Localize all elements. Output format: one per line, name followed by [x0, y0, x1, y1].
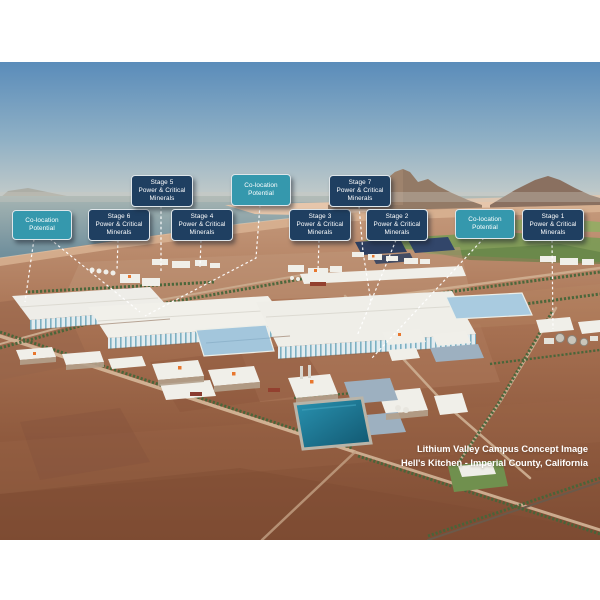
- callout-line: Power & Critical: [296, 221, 343, 229]
- callout-line: Minerals: [107, 229, 132, 237]
- callout-line: Power & Critical: [178, 221, 225, 229]
- callout-colocation-left: Co-locationPotential: [12, 210, 72, 240]
- callout-line: Power & Critical: [373, 221, 420, 229]
- callout-stage-4: Stage 4Power & CriticalMinerals: [171, 209, 233, 241]
- callout-stage-1: Stage 1Power & CriticalMinerals: [522, 209, 584, 241]
- callout-line: Power & Critical: [336, 187, 383, 195]
- callout-line: Potential: [29, 225, 55, 233]
- image-caption: Lithium Valley Campus Concept Image Hell…: [401, 443, 588, 471]
- callout-line: Potential: [472, 224, 498, 232]
- callout-line: Co-location: [244, 182, 277, 190]
- callout-line: Co-location: [468, 216, 501, 224]
- callout-line: Stage 7: [349, 179, 372, 187]
- callout-stage-5: Stage 5Power & CriticalMinerals: [131, 175, 193, 207]
- sky: [0, 62, 600, 202]
- callout-line: Minerals: [385, 229, 410, 237]
- callout-line: Power & Critical: [95, 221, 142, 229]
- callout-line: Stage 1: [542, 213, 565, 221]
- callout-line: Stage 5: [151, 179, 174, 187]
- evaporation-pond: [295, 398, 371, 449]
- callout-colocation-right: Co-locationPotential: [455, 209, 515, 239]
- callout-line: Power & Critical: [529, 221, 576, 229]
- callout-line: Minerals: [190, 229, 215, 237]
- callout-stage-2: Stage 2Power & CriticalMinerals: [366, 209, 428, 241]
- callout-line: Stage 4: [191, 213, 214, 221]
- callout-line: Stage 6: [108, 213, 131, 221]
- lithium-valley-concept-image: Co-locationPotentialStage 6Power & Criti…: [0, 0, 600, 600]
- callout-line: Minerals: [150, 195, 175, 203]
- callout-line: Minerals: [348, 195, 373, 203]
- caption-line-1: Lithium Valley Campus Concept Image: [401, 443, 588, 457]
- callout-stage-6: Stage 6Power & CriticalMinerals: [88, 209, 150, 241]
- callout-colocation-top: Co-locationPotential: [231, 174, 291, 206]
- callout-line: Co-location: [25, 217, 58, 225]
- callout-line: Minerals: [541, 229, 566, 237]
- callout-stage-3: Stage 3Power & CriticalMinerals: [289, 209, 351, 241]
- callout-line: Power & Critical: [138, 187, 185, 195]
- callout-line: Stage 2: [386, 213, 409, 221]
- callout-line: Potential: [248, 190, 274, 198]
- callout-line: Stage 3: [309, 213, 332, 221]
- caption-line-2: Hell's Kitchen - Imperial County, Califo…: [401, 457, 588, 471]
- callout-stage-7: Stage 7Power & CriticalMinerals: [329, 175, 391, 207]
- callout-line: Minerals: [308, 229, 333, 237]
